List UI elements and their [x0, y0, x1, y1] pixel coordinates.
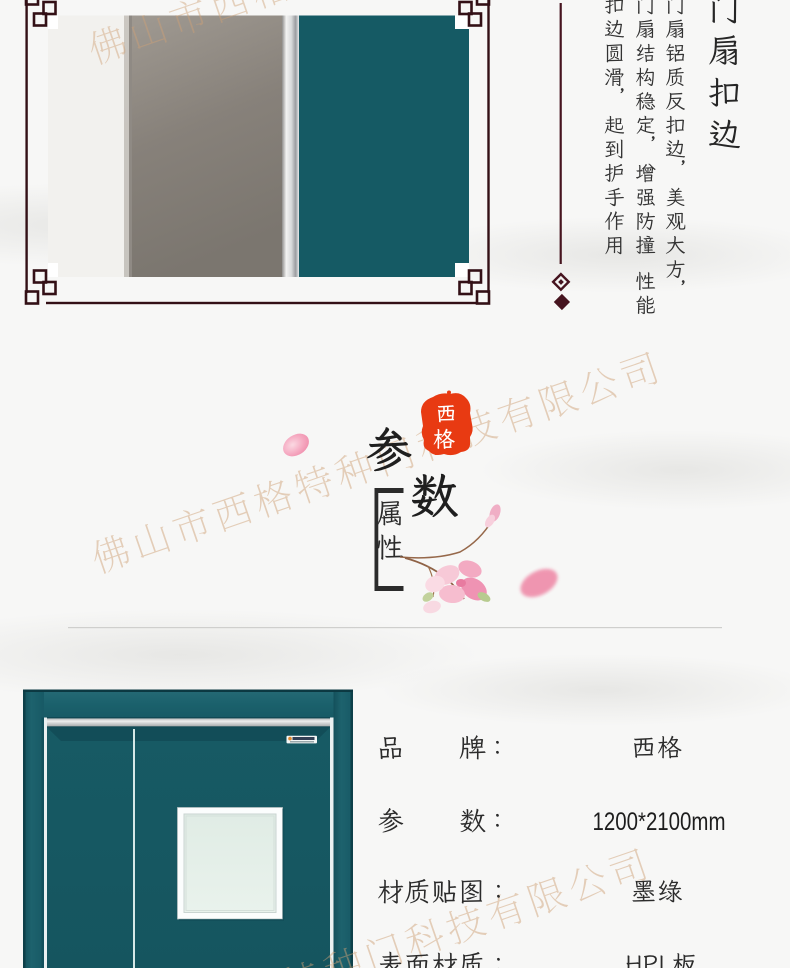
svg-text:1200*2100mm: 1200*2100mm	[593, 808, 726, 836]
